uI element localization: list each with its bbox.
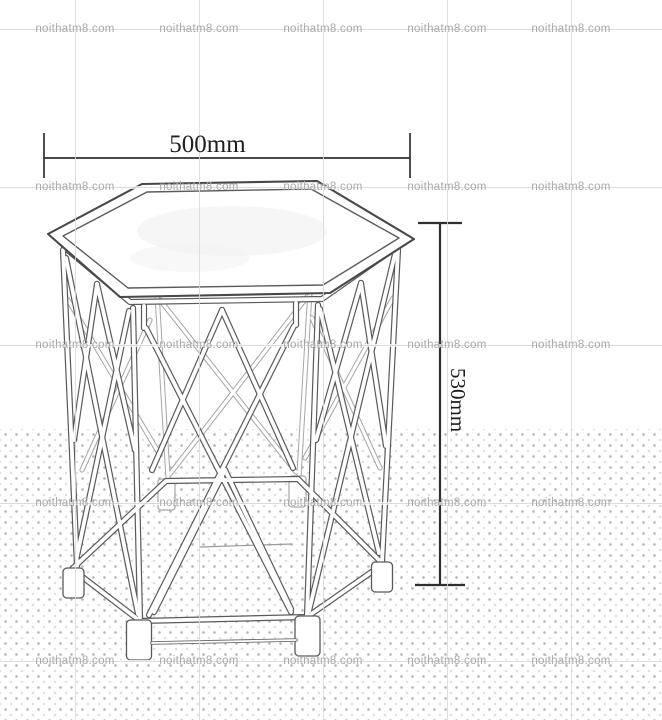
watermark-text: noithatm8.com <box>35 23 114 35</box>
watermark-text: noithatm8.com <box>283 181 362 193</box>
watermark-text: noithatm8.com <box>159 23 238 35</box>
watermark-text: noithatm8.com <box>283 23 362 35</box>
watermark-text: noithatm8.com <box>531 339 610 351</box>
watermark-text: noithatm8.com <box>35 497 114 509</box>
watermark-text: noithatm8.com <box>159 339 238 351</box>
watermark-text: noithatm8.com <box>283 497 362 509</box>
watermark-text: noithatm8.com <box>407 23 486 35</box>
watermark-text: noithatm8.com <box>407 497 486 509</box>
watermark-text: noithatm8.com <box>407 181 486 193</box>
drawing-canvas: noithatm8.comnoithatm8.comnoithatm8.comn… <box>0 0 662 720</box>
watermark-text: noithatm8.com <box>531 23 610 35</box>
watermark-text: noithatm8.com <box>35 339 114 351</box>
width-dimension-label: 500mm <box>150 131 265 159</box>
watermark-layer: noithatm8.comnoithatm8.comnoithatm8.comn… <box>0 0 662 720</box>
watermark-text: noithatm8.com <box>531 181 610 193</box>
technical-drawing-page: { "canvas": { "width": 662, "height": 72… <box>0 0 662 720</box>
watermark-text: noithatm8.com <box>407 655 486 667</box>
watermark-text: noithatm8.com <box>283 339 362 351</box>
watermark-text: noithatm8.com <box>407 339 486 351</box>
watermark-text: noithatm8.com <box>159 497 238 509</box>
watermark-text: noithatm8.com <box>159 181 238 193</box>
watermark-text: noithatm8.com <box>531 497 610 509</box>
watermark-text: noithatm8.com <box>531 655 610 667</box>
watermark-text: noithatm8.com <box>35 181 114 193</box>
watermark-text: noithatm8.com <box>35 655 114 667</box>
watermark-text: noithatm8.com <box>283 655 362 667</box>
height-dimension-label: 530mm <box>445 368 469 432</box>
watermark-text: noithatm8.com <box>159 655 238 667</box>
